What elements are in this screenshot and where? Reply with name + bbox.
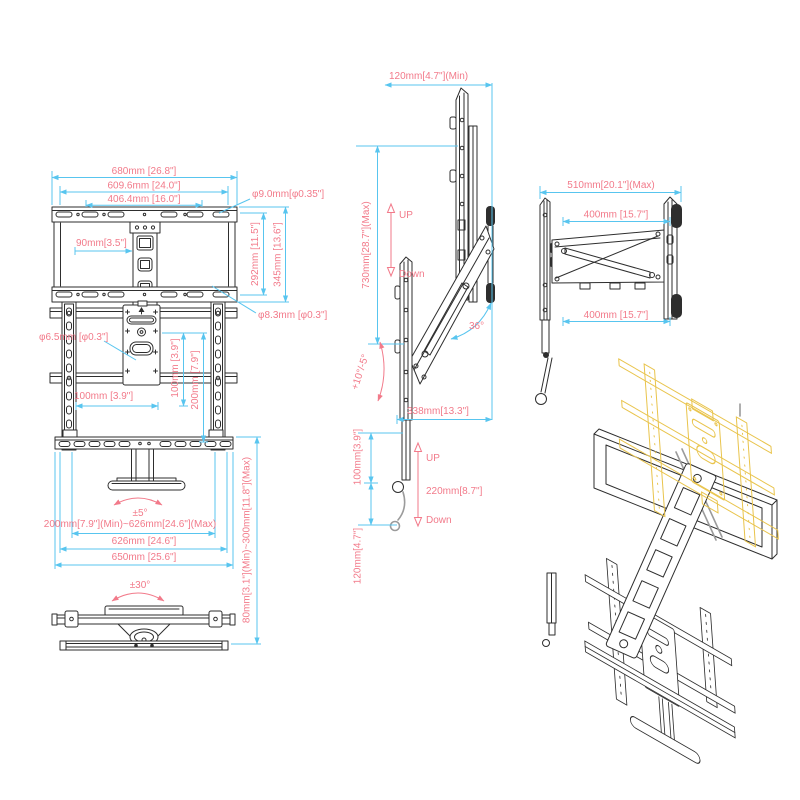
side-view: 120mm[4.7"](Min) 730mm[28.7"](Max) UP Do… bbox=[350, 71, 495, 584]
extended-view-drawing bbox=[536, 197, 683, 405]
dim-label-hole-top: φ9.0mm[φ0.35"] bbox=[252, 189, 324, 200]
label-tilt-range: +10°/-5° bbox=[350, 353, 372, 391]
dim-label-shelf-outer: 650mm [25.6"] bbox=[112, 552, 177, 563]
label-up-2: UP bbox=[426, 453, 440, 464]
dim-label-shelf-inner: 626mm [24.6"] bbox=[112, 536, 177, 547]
diagram-canvas: 680mm [26.8"] 609.6mm [24.0"] 406.4mm [1… bbox=[0, 0, 800, 800]
dim-label-lower-100: 100mm[3.9"] bbox=[353, 429, 364, 486]
dim-label-height-holes: 292mm [11.5"] bbox=[250, 222, 261, 286]
front-vesa-plate bbox=[123, 301, 160, 385]
dim-label-plate-width: 100mm [3.9"] bbox=[74, 391, 133, 402]
label-down-1: Down bbox=[399, 269, 425, 280]
front-shelf-and-pedestal bbox=[55, 430, 233, 490]
dim-label-arm-top: 400mm [15.7"] bbox=[584, 210, 649, 221]
dim-label-height-overall: 345mm [13.6"] bbox=[273, 222, 284, 287]
dim-label-width-range: 200mm[7.9"](Min)~626mm[24.6"](Max) bbox=[44, 519, 216, 530]
extended-view: 510mm[20.1"](Max) 400mm [15.7"] 400mm [1… bbox=[536, 180, 683, 405]
top-view-drawing bbox=[52, 606, 235, 650]
dim-label-height-range: 80mm[3.1"](Min)~300mm[11.8"](Max) bbox=[242, 457, 253, 623]
dim-label-plate-height-200: 200mm [7.9"] bbox=[190, 350, 201, 409]
dim-label-width-overall: 680mm [26.8"] bbox=[112, 166, 177, 177]
dim-label-column-width: 90mm[3.5"] bbox=[76, 238, 127, 249]
iso-wall-hook bbox=[543, 573, 557, 647]
tv-mount-technical-diagram: 680mm [26.8"] 609.6mm [24.0"] 406.4mm [1… bbox=[0, 0, 800, 800]
side-view-drawing bbox=[391, 88, 496, 531]
dim-label-travel-220: 220mm[8.7"] bbox=[426, 486, 483, 497]
dim-label-extension-max: 510mm[20.1"](Max) bbox=[567, 180, 654, 191]
dim-label-arm-bottom: 400mm [15.7"] bbox=[584, 310, 649, 321]
label-down-2: Down bbox=[426, 515, 452, 526]
dim-label-arm-length: 338mm[13.3"] bbox=[407, 406, 469, 417]
label-arm-angle: 36° bbox=[469, 321, 484, 332]
iso-view bbox=[543, 346, 782, 788]
dim-label-hole-mid: φ8.3mm [φ0.3"] bbox=[258, 310, 328, 321]
dim-label-width-inner: 406.4mm [16.0"] bbox=[107, 194, 180, 205]
front-view: 680mm [26.8"] 609.6mm [24.0"] 406.4mm [1… bbox=[39, 166, 328, 644]
dim-label-lift-max: 730mm[28.7"](Max) bbox=[361, 201, 372, 288]
dim-label-hole-plate: φ6.5mm [φ0.3"] bbox=[39, 332, 109, 343]
dim-label-plate-height-100: 100mm [3.9"] bbox=[170, 338, 181, 397]
label-up-1: UP bbox=[399, 210, 413, 221]
dim-label-width-outer: 609.6mm [24.0"] bbox=[107, 181, 180, 192]
label-swivel-range: ±30° bbox=[130, 580, 151, 591]
dim-label-depth-min: 120mm[4.7"](Min) bbox=[389, 71, 468, 82]
dim-label-lower-120: 120mm[4.7"] bbox=[353, 528, 364, 585]
label-swivel-fine: ±5° bbox=[132, 508, 147, 519]
top-view: ±30° bbox=[52, 580, 235, 650]
